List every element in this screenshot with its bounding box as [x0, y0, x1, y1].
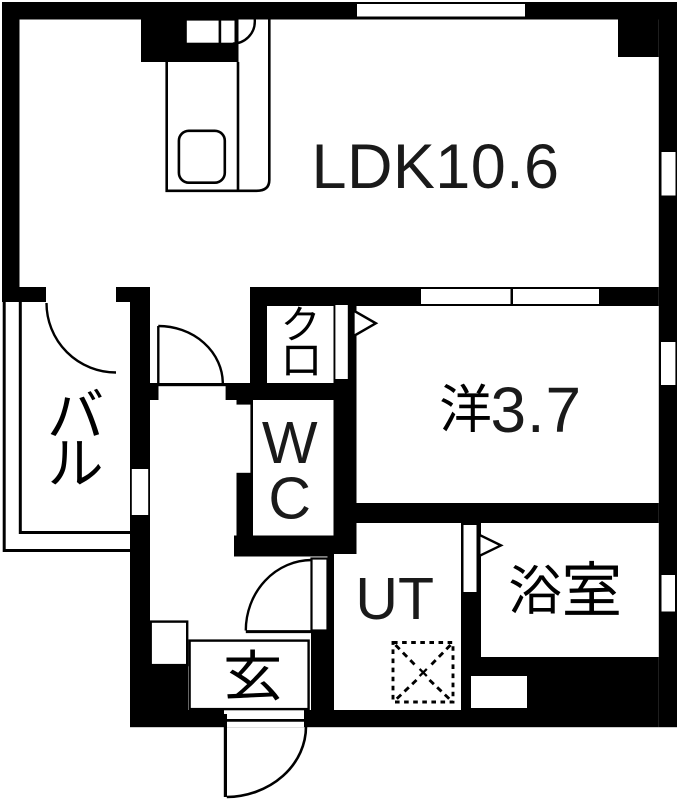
svg-text:C: C [268, 466, 311, 532]
svg-text:UT: UT [355, 566, 434, 632]
svg-text:3.7: 3.7 [491, 374, 582, 446]
svg-text:LDK10.6: LDK10.6 [312, 132, 560, 202]
